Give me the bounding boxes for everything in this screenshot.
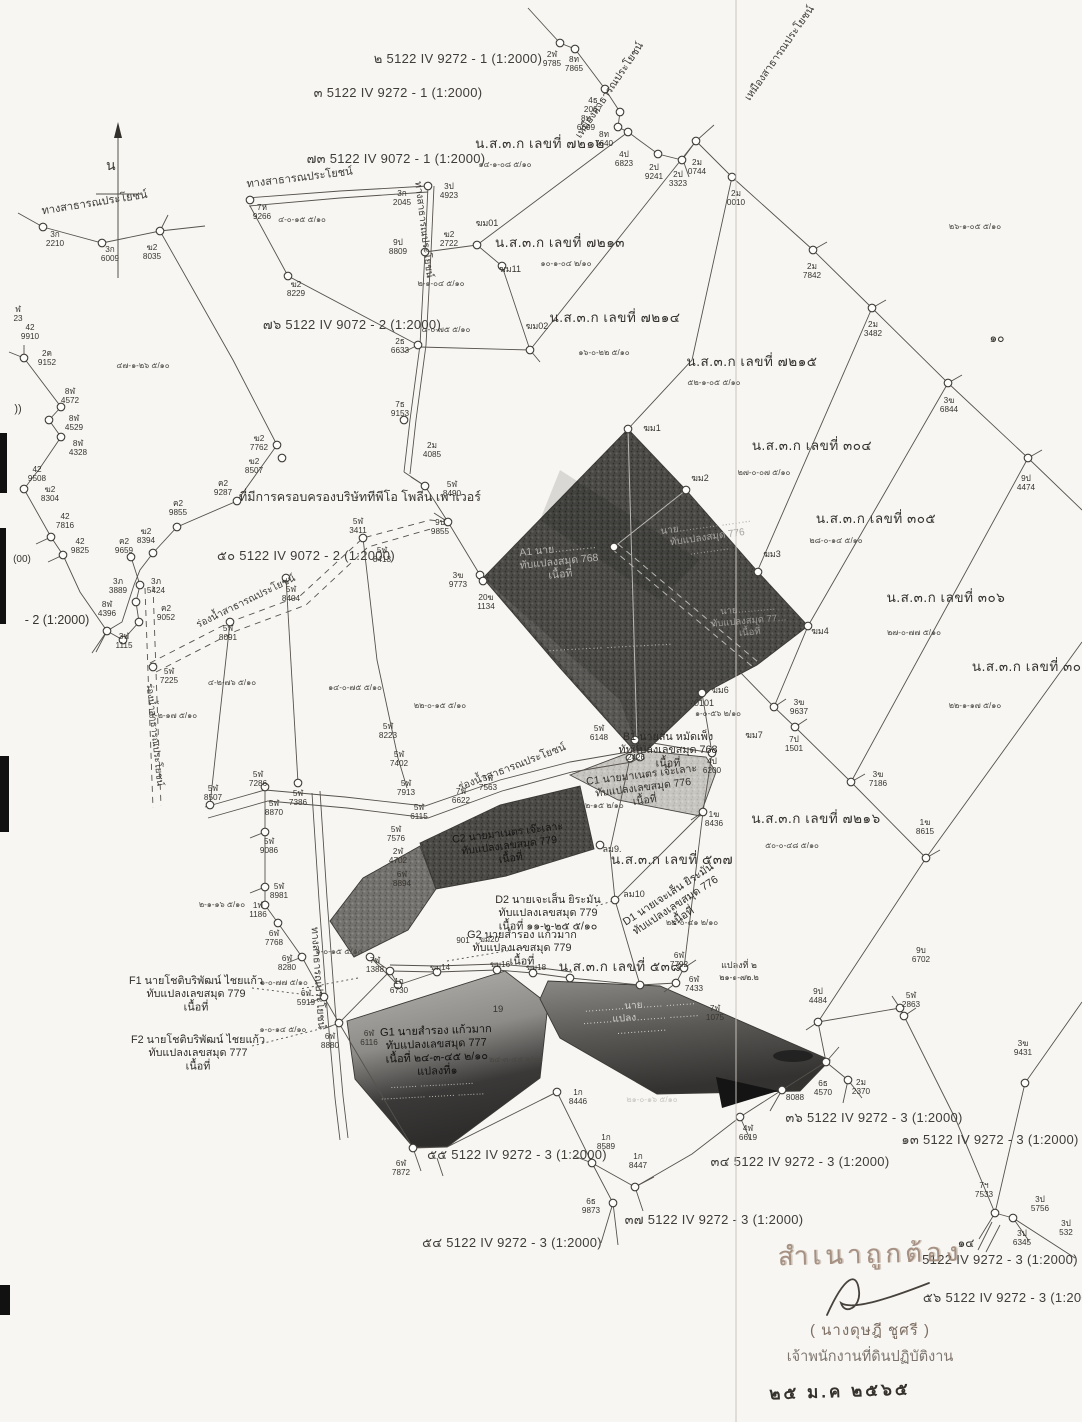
area-label: ๒๖-๑-๐๕ ๕/๑๐	[949, 222, 1001, 231]
parcel-number-label: น.ส.๓.ก เลขที่ ๓๐๖	[887, 588, 1006, 605]
area-label: ๒๒-๑-๑๗ ๕/๑๐	[949, 701, 1002, 710]
survey-node-dot	[682, 486, 690, 494]
map-annotation: แปลงที่ ๒	[721, 958, 757, 970]
survey-node-dot	[698, 689, 706, 697]
survey-node-dot	[274, 919, 282, 927]
survey-node-dot	[149, 549, 157, 557]
survey-node-dot	[611, 896, 619, 904]
area-label: ๒-๑-๐๔ ๕/๑๐	[417, 279, 464, 288]
scanned-cadastral-map-page: 3ก22103ก6009ฆ280357ห92663ก20453ป49239ป88…	[0, 0, 1082, 1422]
survey-node-dot	[335, 1019, 343, 1027]
map-annotation: ๒๑-๑-๗๒.๒	[719, 973, 759, 982]
map-annotation: ฆม16	[490, 960, 511, 969]
survey-node-dot	[284, 272, 292, 280]
survey-node-dot	[173, 523, 181, 531]
survey-node-dot	[136, 581, 144, 589]
area-label: ๑-๐-๕๖ ๒/๑๐	[695, 709, 741, 718]
survey-node-dot	[414, 341, 422, 349]
map-sheet-label: ๓๗ 5122 IV 9272 - 3 (1:2000)	[625, 1212, 804, 1227]
survey-node-dot	[278, 454, 286, 462]
parcel-number-label: น.ส.๓.ก เลขที่ ๗๒๑๓	[495, 233, 625, 250]
parcel-number-label: น.ส.๓.ก เลขที่ ๕๓๗	[611, 850, 733, 867]
map-annotation: ที่มีการครอบครองบริษัททีพีโอ โพลีน เพาเว…	[239, 488, 481, 504]
survey-node-dot	[135, 618, 143, 626]
scan-artifact	[0, 433, 7, 493]
survey-node-dot	[814, 1018, 822, 1026]
certification-date: ๒๕ ม.ค ๒๕๖๕	[700, 1373, 981, 1410]
survey-node-dot	[822, 1058, 830, 1066]
map-sheet-label: ๓๖ 5122 IV 9272 - 3 (1:2000)	[785, 1110, 962, 1125]
area-label: ๑-๐-๗๗ ๕/๑๐	[260, 978, 308, 987]
area-label: ๕๐-๐-๔๘ ๕/๑๐	[765, 841, 819, 850]
survey-node-dot	[631, 1183, 639, 1191]
survey-node-dot	[294, 779, 302, 787]
survey-node-dot	[566, 974, 574, 982]
survey-node-dot	[692, 137, 700, 145]
survey-node-dot	[298, 953, 306, 961]
survey-node-dot	[672, 979, 680, 987]
survey-node-dot	[624, 128, 632, 136]
scan-artifact	[773, 1050, 813, 1062]
area-label: ๒๗-๐-๐๗ ๕/๑๐	[738, 468, 791, 477]
area-label: ๔๗-๑-๒๖ ๕/๑๐	[116, 361, 169, 370]
survey-node-dot	[624, 425, 632, 433]
survey-node-dot	[261, 883, 269, 891]
map-annotation: 19	[493, 1004, 504, 1015]
parcel-number-label: น.ส.๓.ก เลขที่ ๗๒๑๕	[687, 352, 818, 369]
area-label: ๕-๒-๑๕ ๒/๑๐	[576, 801, 624, 810]
survey-node-dot	[770, 703, 778, 711]
survey-node-dot	[678, 156, 686, 164]
survey-node-dot	[844, 1076, 852, 1084]
survey-node-dot	[409, 1144, 417, 1152]
survey-node-dot	[20, 485, 28, 493]
map-annotation: ฆม14	[430, 963, 451, 972]
survey-node-dot	[809, 246, 817, 254]
scan-artifact	[0, 756, 9, 832]
owner-annotation-d2: D2 นายเจะเส็น ยิระมันทับแปลงเลขสมุด 779เ…	[495, 892, 601, 932]
parcel-number-label: น.ส.๓.ก เลขที่ ๓๐๗	[972, 657, 1082, 674]
area-label: ๑๖-๐-๒๒ ๕/๑๐	[578, 348, 629, 357]
map-annotation: ลม9.	[603, 844, 622, 854]
survey-node-dot	[246, 196, 254, 204]
parcel-number-label: น.ส.๓.ก เลขที่ ๓๐๕	[816, 509, 936, 526]
survey-node-dot	[610, 543, 618, 551]
survey-node-dot	[479, 577, 487, 585]
map-sheet-label: ๒ 5122 IV 9272 - 1 (1:2000)	[374, 51, 542, 66]
survey-node-dot	[47, 533, 55, 541]
survey-node-dot	[149, 663, 157, 671]
survey-node-dot	[421, 482, 429, 490]
parcel-number-label: น.ส.๓.ก เลขที่ ๕๓๘	[559, 957, 682, 974]
survey-node-dot	[206, 801, 214, 809]
map-annotation: ฆม4	[811, 626, 829, 636]
survey-node-dot	[991, 1209, 999, 1217]
parcel-number-label: น.ส.๓.ก เลขที่ ๓๐๔	[752, 436, 872, 453]
survey-node-dot	[39, 223, 47, 231]
area-label: ๒๑-๐-๑๖ ๕/๑๐	[626, 1095, 677, 1104]
map-sheet-label: ๗๓ 5122 IV 9072 - 1 (1:2000)	[307, 151, 486, 166]
survey-node-dot	[261, 828, 269, 836]
survey-node-dot	[616, 108, 624, 116]
map-annotation: - 2 (1:2000)	[25, 613, 90, 627]
survey-node-dot	[636, 981, 644, 989]
map-sheet-label: ๓ 5122 IV 9272 - 1 (1:2000)	[314, 85, 483, 100]
area-label: ๒๗-๐-๗๗ ๕/๑๐	[887, 628, 941, 637]
signature-stroke	[827, 1279, 929, 1315]
survey-node-dot	[59, 551, 67, 559]
survey-node-dot	[571, 45, 579, 53]
survey-node-dot	[273, 441, 281, 449]
survey-node-dot	[654, 150, 662, 158]
survey-node-dot	[609, 1199, 617, 1207]
area-label: ๒๘-๐-๑๔ ๕/๑๐	[809, 536, 862, 545]
survey-map-canvas: 3ก22103ก6009ฆ280357ห92663ก20453ป49239ป88…	[0, 0, 1082, 1422]
north-label: น	[106, 157, 116, 173]
map-annotation: ฆม2	[691, 473, 709, 483]
area-label: ๑๐-๑-๐๔ ๒/๑๐	[541, 259, 592, 268]
area-label: ๒-๑-๑๖ ๕/๑๐	[199, 900, 245, 909]
officer-name: ( นางดุษฎี ชูศรี )	[700, 1318, 1040, 1342]
survey-node-dot	[156, 227, 164, 235]
survey-node-dot	[424, 182, 432, 190]
map-annotation: ฆม6	[711, 685, 729, 695]
survey-node-dot	[699, 808, 707, 816]
map-annotation: ลม10	[623, 889, 644, 899]
map-sheet-label: ๓๔ 5122 IV 9272 - 3 (1:2000)	[711, 1154, 890, 1169]
area-label: ๑๔-๑-๐๘ ๕/๑๐	[478, 160, 531, 169]
survey-node-dot	[922, 854, 930, 862]
area-label: ๔-๐-๑๕ ๕/๑๐	[278, 215, 326, 224]
survey-node-dot	[1024, 454, 1032, 462]
survey-node-dot	[444, 518, 452, 526]
survey-node-dot	[103, 627, 111, 635]
survey-node-dot	[553, 1088, 561, 1096]
survey-node-dot	[473, 241, 481, 249]
survey-node-dot	[614, 123, 622, 131]
area-label: ๔-๒-๗๖ ๕/๑๐	[208, 678, 256, 687]
survey-node-dot	[868, 304, 876, 312]
map-annotation: ฆม02	[526, 321, 549, 331]
map-annotation: ฆม01	[476, 218, 499, 228]
survey-node-dot	[900, 1012, 908, 1020]
node-label: 20ฆ1134	[477, 593, 495, 611]
map-annotation: ๑๐	[990, 331, 1005, 345]
certification-block: สำเนาถูกต้อง ( นางดุษฎี ชูศรี ) เจ้าพนัก…	[700, 1234, 1040, 1405]
parcel-number-label: น.ส.๓.ก เลขที่ ๗๒๑๖	[751, 809, 880, 826]
survey-node-dot	[556, 39, 564, 47]
map-annotation: ))	[14, 403, 21, 415]
map-sheet-label: ๕๕ 5122 IV 9272 - 3 (1:2000)	[427, 1147, 607, 1162]
map-annotation: ฆม3	[763, 549, 781, 559]
survey-node-dot	[386, 967, 394, 975]
area-label: ๒๒-๐-๑๕ ๕/๑๐	[414, 701, 466, 710]
survey-node-dot	[728, 173, 736, 181]
area-label: ๑-๐-๑๔ ๕/๑๐	[260, 1025, 307, 1034]
area-label: ๑๔-๐-๗๕ ๕/๑๐	[328, 683, 382, 692]
survey-node-dot	[736, 1113, 744, 1121]
survey-node-dot	[944, 379, 952, 387]
survey-node-dot	[359, 534, 367, 542]
map-annotation: ฆม7	[745, 730, 763, 740]
map-annotation: ฆม1	[643, 423, 661, 433]
survey-node-dot	[1021, 1079, 1029, 1087]
parcel-number-label: น.ส.๓.ก เลขที่ ๗๒๑๔	[550, 308, 681, 325]
survey-node-dot	[754, 568, 762, 576]
map-sheet-label: ๑๓ 5122 IV 9272 - 3 (1:2000)	[901, 1132, 1078, 1147]
survey-node-dot	[791, 723, 799, 731]
scan-artifact	[0, 1285, 10, 1315]
survey-node-dot	[778, 1086, 786, 1094]
survey-node-dot	[20, 354, 28, 362]
map-annotation: 0101	[694, 698, 714, 708]
survey-node-dot	[847, 778, 855, 786]
map-sheet-label: ๕๔ 5122 IV 9272 - 3 (1:2000)	[422, 1235, 602, 1250]
map-sheet-label: ๕๐ 5122 IV 9072 - 2 (1:2000)	[217, 548, 395, 563]
survey-node-dot	[45, 416, 53, 424]
map-sheet-label: ๗๖ 5122 IV 9072 - 2 (1:2000)	[263, 317, 441, 332]
survey-node-dot	[132, 598, 140, 606]
survey-node-dot	[57, 433, 65, 441]
area-label: ๕๒-๑-๐๕ ๕/๑๐	[687, 378, 740, 387]
scan-artifact	[0, 528, 6, 624]
survey-node-dot	[1009, 1214, 1017, 1222]
officer-title: เจ้าพนักงานที่ดินปฏิบัติงาน	[700, 1345, 1040, 1368]
map-annotation: (00)	[13, 554, 31, 565]
area-label: ๒๔-๓-๔๕ ๒/๑๐	[489, 1055, 543, 1064]
survey-node-dot	[526, 346, 534, 354]
map-annotation: ฆม11	[499, 264, 521, 274]
